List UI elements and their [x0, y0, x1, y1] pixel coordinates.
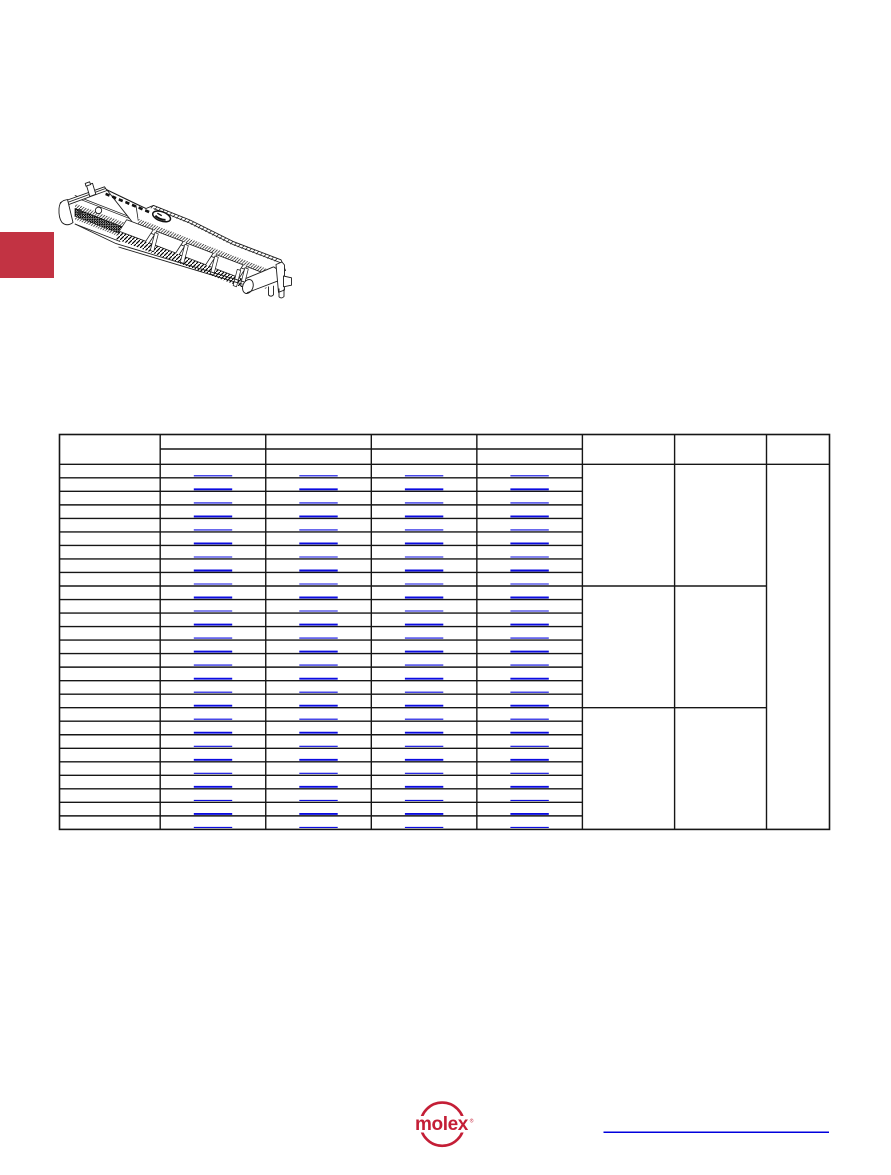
- svg-text:molex: molex: [415, 1114, 469, 1135]
- svg-text:®: ®: [470, 1117, 474, 1124]
